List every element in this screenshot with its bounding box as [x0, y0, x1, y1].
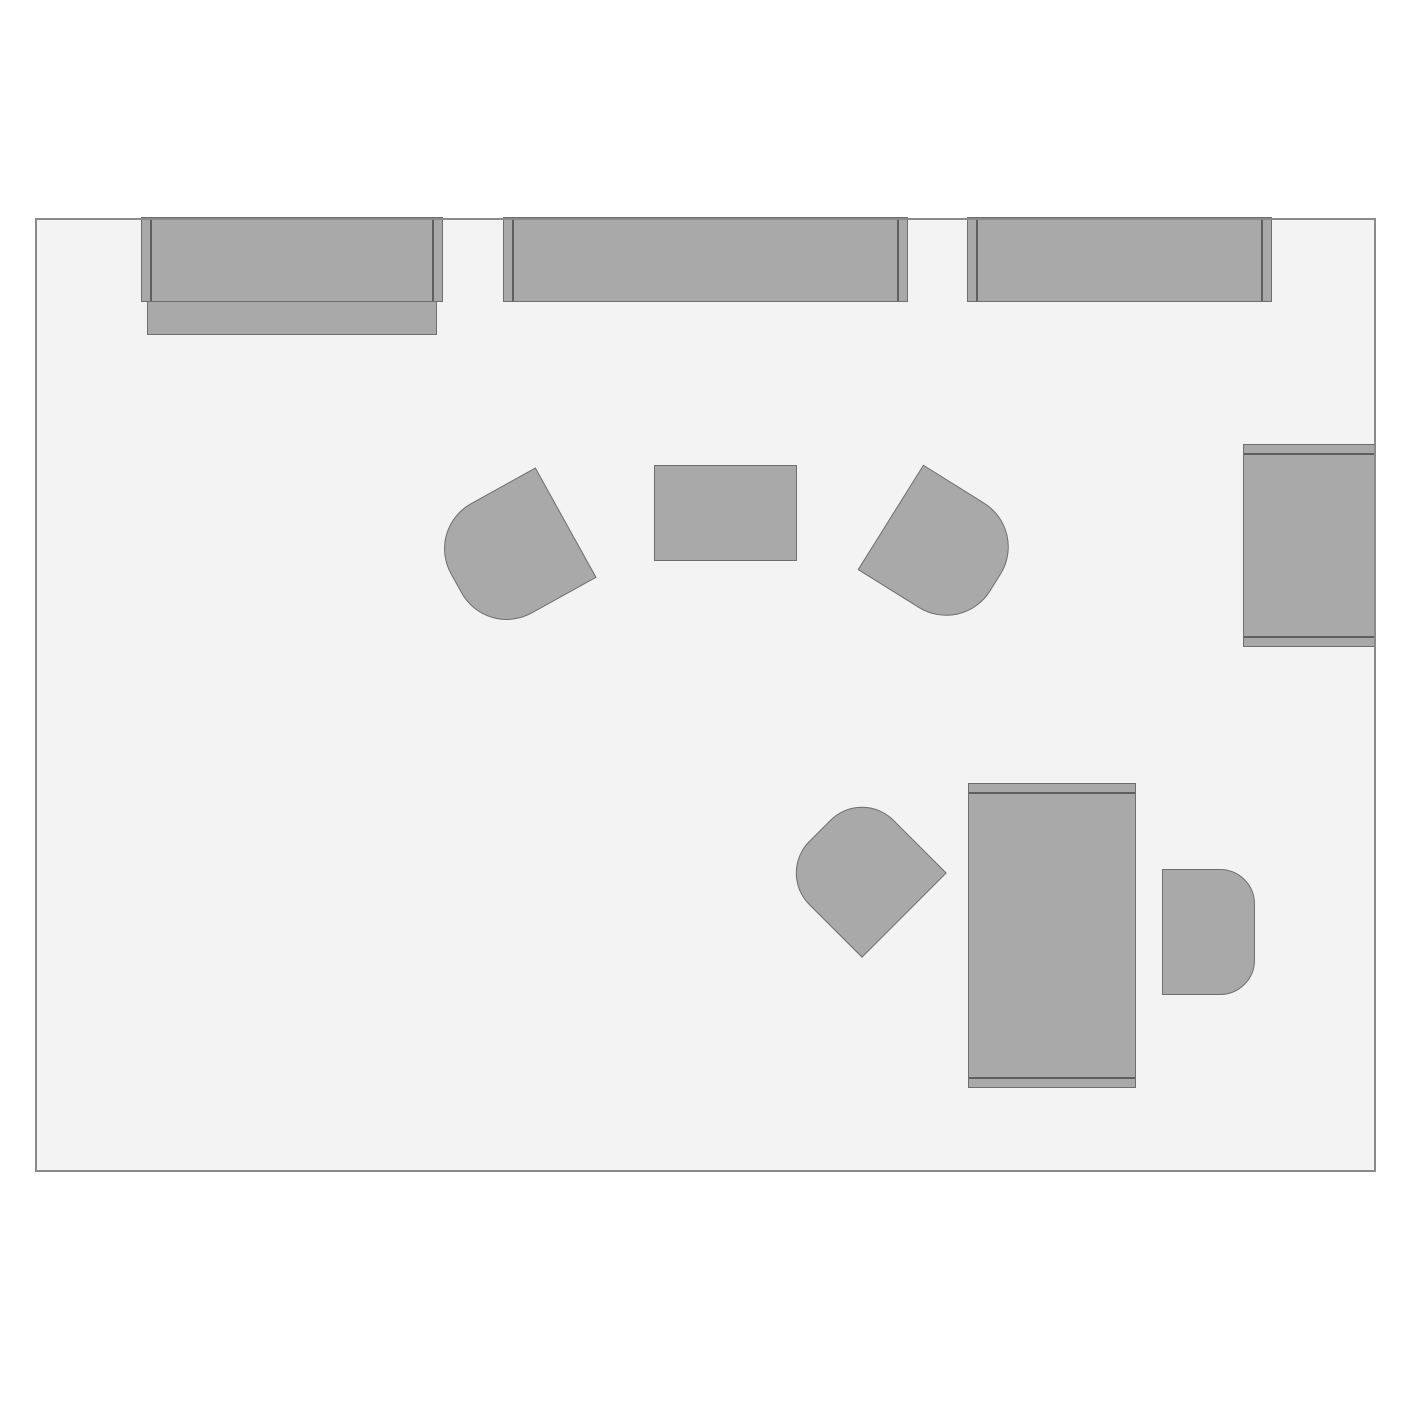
room-floor[interactable]	[35, 218, 1376, 1172]
desk-end-panel	[150, 218, 152, 301]
desk-end-panel	[897, 218, 899, 301]
desk-right-wall[interactable]	[1243, 444, 1376, 647]
desk-end-panel	[512, 218, 514, 301]
desk-end-panel	[969, 792, 1135, 794]
desk-end-panel	[976, 218, 978, 301]
chair-desk-right[interactable]	[1162, 869, 1255, 995]
desk-end-panel	[432, 218, 434, 301]
coffee-table[interactable]	[654, 465, 797, 561]
desk-top-left-return[interactable]	[147, 301, 437, 335]
desk-top-right[interactable]	[967, 217, 1272, 302]
desk-end-panel	[969, 1077, 1135, 1079]
floorplan-canvas	[0, 0, 1403, 1403]
desk-end-panel	[1244, 636, 1375, 638]
desk-top-left[interactable]	[141, 217, 443, 302]
desk-end-panel	[1261, 218, 1263, 301]
desk-top-center[interactable]	[503, 217, 908, 302]
desk-end-panel	[1244, 453, 1375, 455]
desk-bottom-right[interactable]	[968, 783, 1136, 1088]
